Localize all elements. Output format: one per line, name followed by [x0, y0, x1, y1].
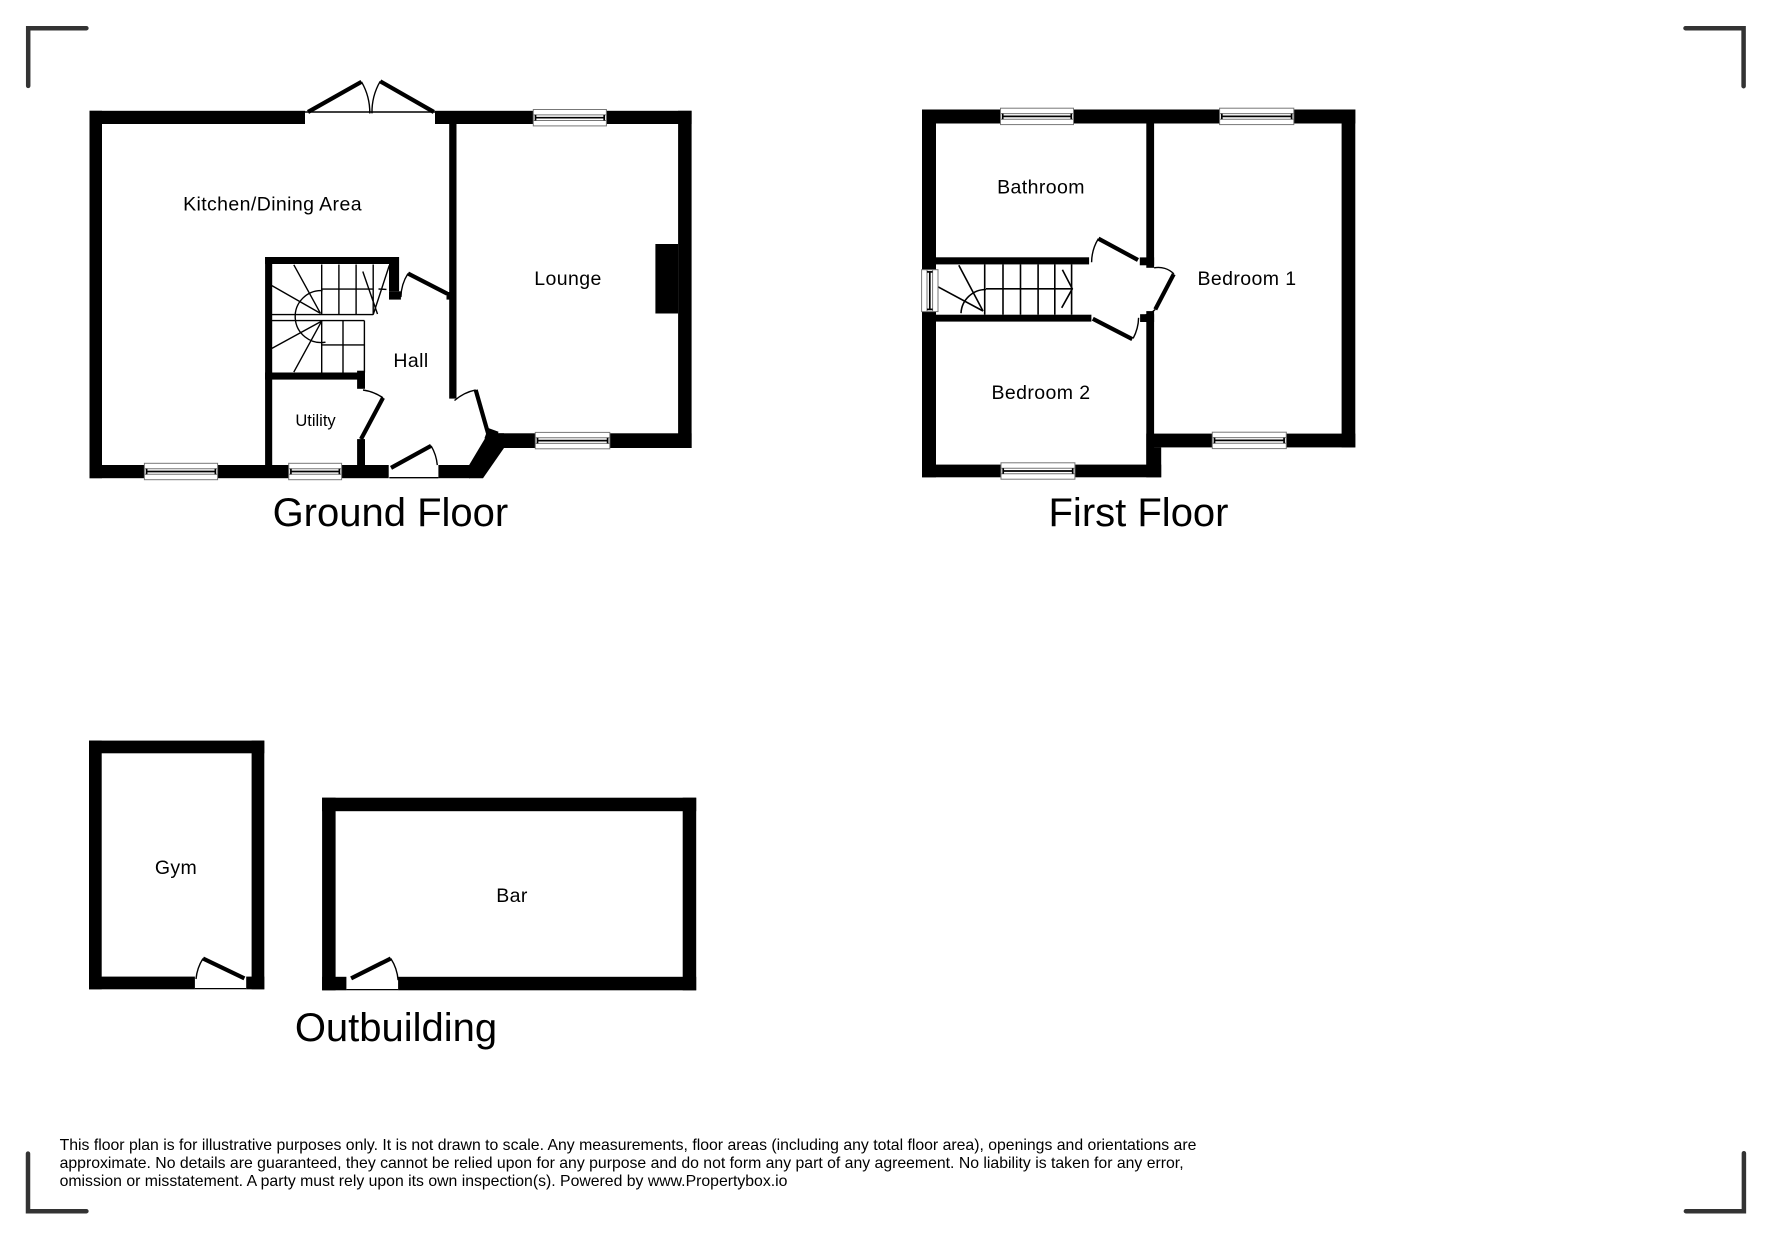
svg-text:This floor plan is for illustr: This floor plan is for illustrative purp… — [60, 1137, 1197, 1154]
svg-text:Bathroom: Bathroom — [997, 177, 1085, 199]
svg-text:Ground Floor: Ground Floor — [273, 491, 509, 535]
svg-text:omission or misstatement. A pa: omission or misstatement. A party must r… — [60, 1173, 788, 1190]
svg-text:Bedroom 1: Bedroom 1 — [1198, 268, 1297, 290]
svg-text:Lounge: Lounge — [534, 268, 601, 290]
svg-text:Utility: Utility — [295, 412, 336, 430]
svg-text:First Floor: First Floor — [1049, 491, 1229, 535]
svg-text:Gym: Gym — [155, 857, 197, 879]
svg-text:Bedroom 2: Bedroom 2 — [992, 382, 1091, 404]
svg-text:Outbuilding: Outbuilding — [295, 1006, 497, 1050]
svg-text:Hall: Hall — [393, 350, 428, 372]
svg-text:approximate. No details are gu: approximate. No details are guaranteed, … — [60, 1155, 1184, 1172]
svg-text:Kitchen/Dining Area: Kitchen/Dining Area — [183, 194, 362, 216]
svg-text:Bar: Bar — [496, 885, 528, 907]
